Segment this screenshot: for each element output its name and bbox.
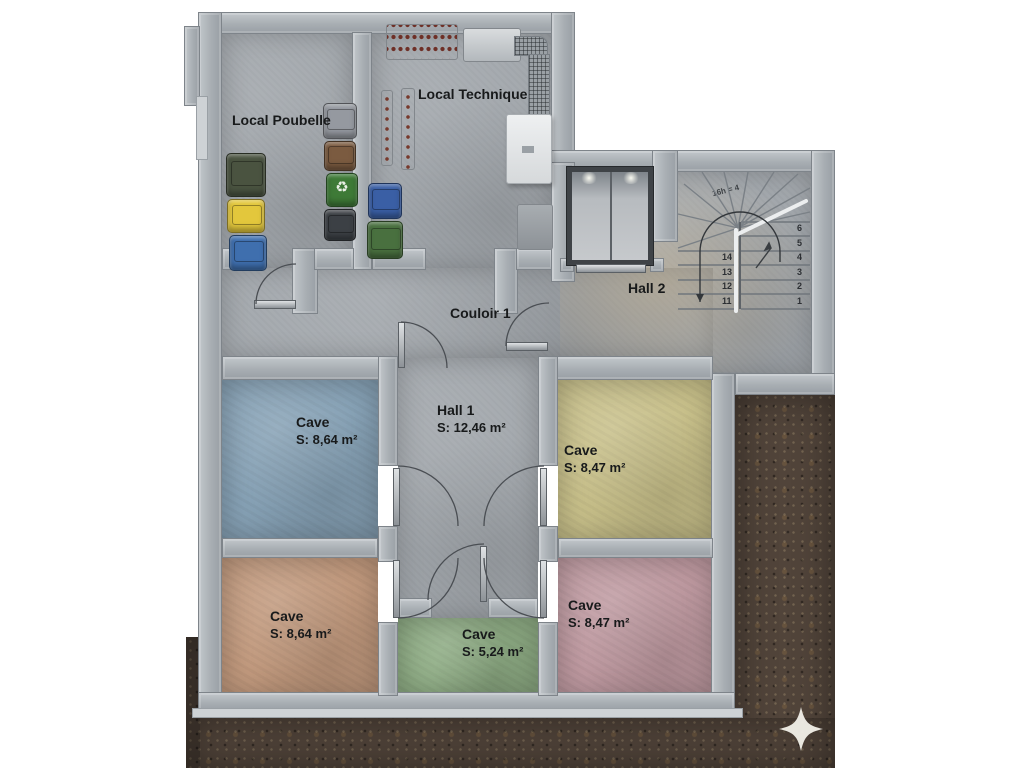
trash-bin-yellow — [227, 199, 265, 233]
wall-yellow-pink-divider — [558, 538, 713, 558]
door-leaf-technique — [506, 342, 548, 351]
elevator — [566, 166, 654, 266]
door-leaf-cave-orange — [393, 560, 400, 618]
room-label-local-poubelle: Local Poubelle — [232, 112, 331, 130]
elevator-light — [580, 172, 598, 184]
elevator-light — [622, 172, 640, 184]
wall-right-top-block — [551, 12, 575, 172]
door-leaf-cave-pink — [540, 560, 547, 618]
heating-manifold-rack — [386, 24, 458, 60]
wall-w2-lower — [538, 622, 558, 696]
trash-bin-charcoal — [324, 209, 356, 241]
utility-box — [517, 204, 553, 250]
dirt-bottom — [186, 718, 835, 768]
wall-right-lower — [711, 373, 735, 712]
door-leaf-cave-blue — [393, 468, 400, 526]
wall-pilaster — [184, 26, 200, 106]
room-label-cave-green: CaveS: 5,24 m² — [462, 626, 523, 660]
wall-bottom-ledge — [192, 708, 743, 718]
floor-plan-canvas: ♻ 6 5 4 3 2 1 14 13 12 11 16h = 4 — [0, 0, 1024, 768]
door-leaf-cave-green — [480, 546, 487, 602]
door-leaf-cave-yellow — [540, 468, 547, 526]
room-label-cave-blue: CaveS: 8,64 m² — [296, 414, 357, 448]
stair-number: 11 — [722, 296, 732, 306]
trash-bin-recycling: ♻ — [326, 173, 358, 207]
wall-corridor-south-left — [222, 356, 398, 380]
wall-corridor-north-2 — [314, 248, 354, 270]
distribution-manifold-left — [381, 90, 393, 166]
stair-number: 4 — [797, 252, 802, 262]
wall-corridor-south-right — [538, 356, 713, 380]
wall-green-north-right — [488, 598, 538, 618]
room-label-cave-pink: CaveS: 8,47 m² — [568, 597, 629, 631]
trash-bin-blue — [229, 235, 267, 271]
trash-bin-blue-technique — [368, 183, 402, 219]
stair-number: 3 — [797, 267, 802, 277]
room-label-hall-2: Hall 2 — [628, 280, 665, 298]
wall-w2-upper — [538, 356, 558, 466]
dirt-right — [735, 393, 835, 768]
wall-elevator-right — [652, 150, 678, 242]
wall-corridor-north-4 — [516, 248, 553, 270]
wall-w1-mid — [378, 526, 398, 562]
trash-bin-brown — [324, 141, 356, 171]
stair-number: 6 — [797, 223, 802, 233]
wall-w2-mid — [538, 526, 558, 562]
room-label-local-technique: Local Technique — [418, 86, 527, 104]
room-label-couloir-1: Couloir 1 — [450, 305, 511, 323]
elevator-doors — [572, 172, 648, 260]
elevator-sill — [576, 264, 646, 273]
stair-number: 13 — [722, 267, 732, 277]
room-cave-blue — [222, 380, 378, 538]
wall-w1-lower — [378, 622, 398, 696]
trash-bin-green-technique — [367, 221, 403, 259]
stair-number: 5 — [797, 238, 802, 248]
boiler-logo — [522, 146, 534, 153]
wall-window — [196, 96, 208, 160]
wall-w1-upper — [378, 356, 398, 466]
wall-blue-orange-divider — [222, 538, 378, 558]
trash-bin-olive — [226, 153, 266, 197]
stair-number: 14 — [722, 252, 732, 262]
stair-number: 2 — [797, 281, 802, 291]
air-duct-horizontal — [514, 36, 548, 56]
room-label-cave-yellow: CaveS: 8,47 m² — [564, 442, 625, 476]
ventilation-unit — [463, 28, 521, 62]
floor-hall1 — [398, 358, 538, 618]
room-label-cave-orange: CaveS: 8,64 m² — [270, 608, 331, 642]
stair-number: 12 — [722, 281, 732, 291]
room-label-hall-1: Hall 1S: 12,46 m² — [437, 402, 506, 436]
distribution-manifold-right — [401, 88, 415, 170]
recycle-icon: ♻ — [327, 178, 357, 196]
door-leaf-poubelle — [254, 300, 296, 309]
door-leaf-couloir — [398, 322, 405, 368]
stair-number: 1 — [797, 296, 802, 306]
wall-right-upper — [811, 150, 835, 395]
wall-stair-bottom — [735, 373, 835, 395]
elevator-door-seam — [610, 172, 612, 260]
wall-green-north-left — [398, 598, 432, 618]
